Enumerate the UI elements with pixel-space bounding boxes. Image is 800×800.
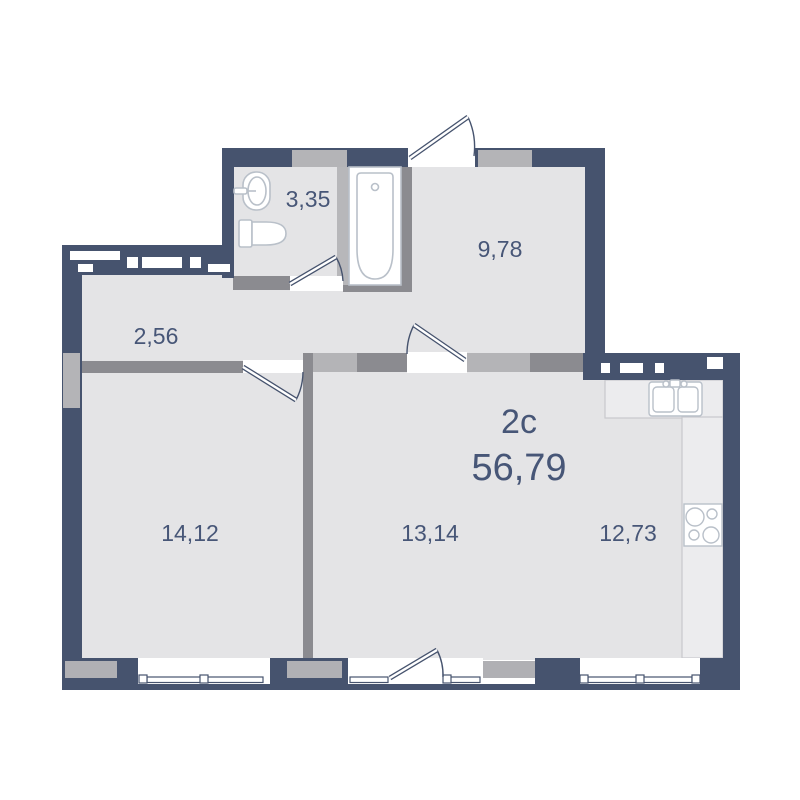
kitchen-sink-icon bbox=[649, 380, 702, 416]
living-room-area-label: 13,14 bbox=[401, 520, 459, 546]
toilet-icon bbox=[239, 220, 286, 247]
corridor-area-label: 2,56 bbox=[134, 323, 179, 349]
entrance-hall-area-label: 9,78 bbox=[478, 236, 523, 262]
kitchen-area-label: 12,73 bbox=[599, 520, 657, 546]
bathroom-area-label: 3,35 bbox=[286, 186, 331, 212]
floor-plan: 3,35 9,78 2,56 14,12 13,14 12,73 2c 56,7… bbox=[0, 0, 800, 800]
bedroom-area-label: 14,12 bbox=[161, 520, 219, 546]
stove-icon bbox=[684, 504, 722, 546]
floor-plan-page: 3,35 9,78 2,56 14,12 13,14 12,73 2c 56,7… bbox=[0, 0, 800, 800]
plan-total-area: 56,79 bbox=[471, 447, 566, 489]
plan-type-label: 2c bbox=[501, 403, 537, 441]
bathtub-icon bbox=[349, 167, 401, 285]
